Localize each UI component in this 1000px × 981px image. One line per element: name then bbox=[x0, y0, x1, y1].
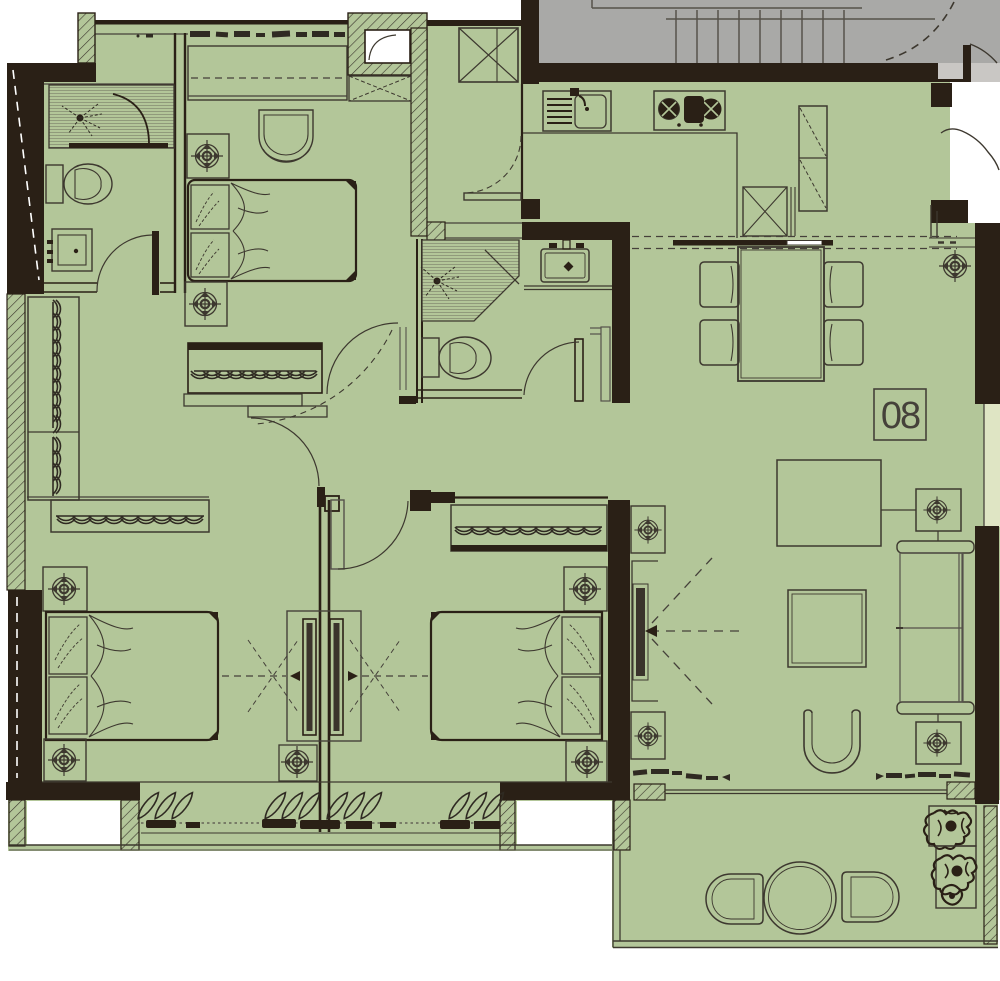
svg-text:08: 08 bbox=[881, 395, 920, 437]
